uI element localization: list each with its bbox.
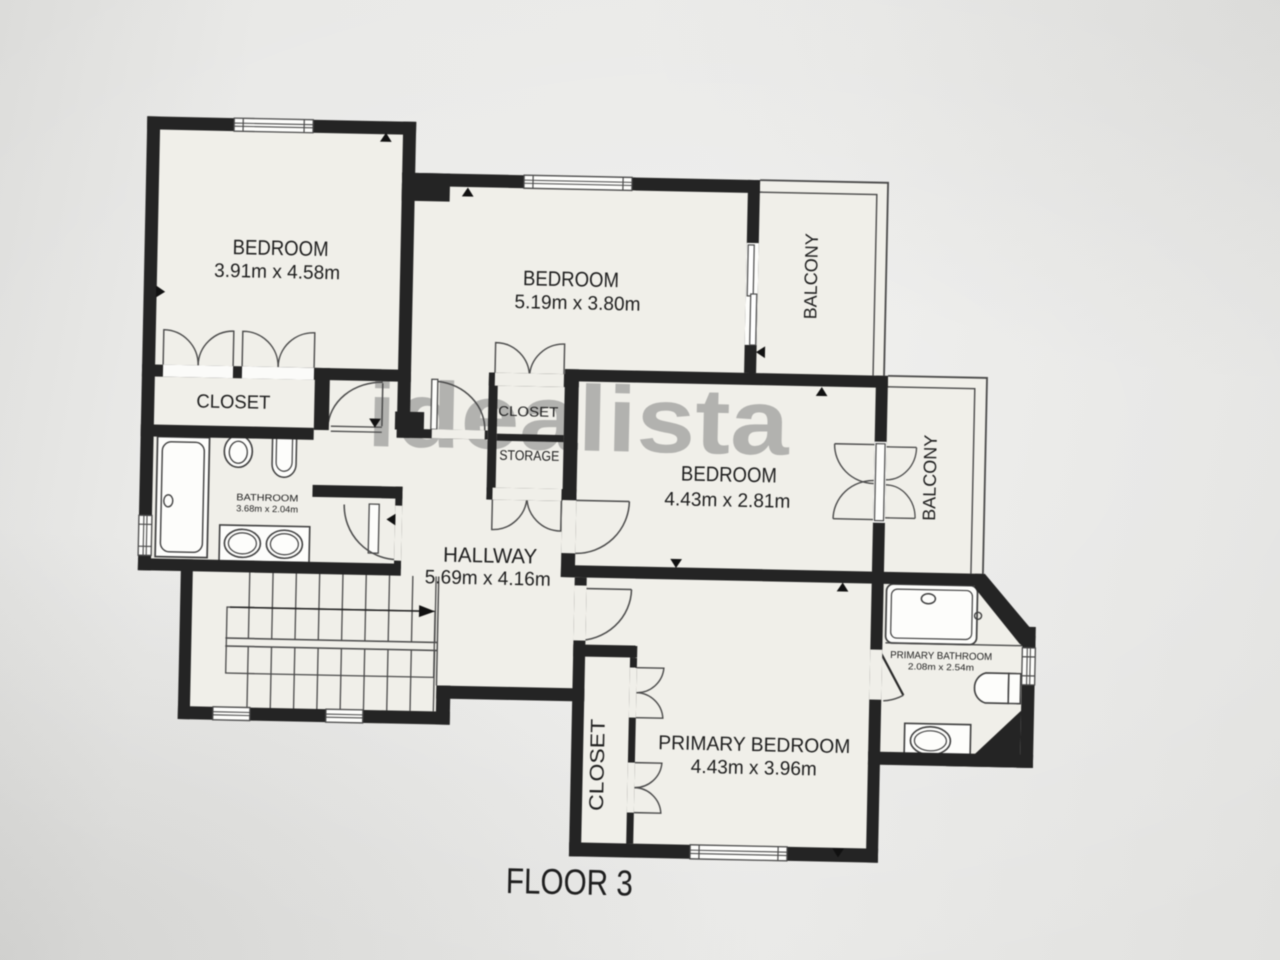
svg-text:BEDROOM: BEDROOM xyxy=(523,267,619,292)
svg-text:4.43m x 3.96m: 4.43m x 3.96m xyxy=(691,756,817,781)
svg-text:CLOSET: CLOSET xyxy=(586,719,610,811)
svg-text:BALCONY: BALCONY xyxy=(800,233,822,319)
svg-text:BEDROOM: BEDROOM xyxy=(681,463,777,488)
svg-text:3.68m x 2.04m: 3.68m x 2.04m xyxy=(236,503,298,514)
svg-text:BALCONY: BALCONY xyxy=(919,435,941,521)
svg-text:STORAGE: STORAGE xyxy=(499,447,559,464)
svg-text:CLOSET: CLOSET xyxy=(498,403,559,420)
svg-text:FLOOR 3: FLOOR 3 xyxy=(505,860,633,904)
svg-text:CLOSET: CLOSET xyxy=(196,391,271,414)
svg-text:5.69m x 4.16m: 5.69m x 4.16m xyxy=(424,566,550,591)
svg-text:3.91m x 4.58m: 3.91m x 4.58m xyxy=(214,260,340,285)
svg-text:PRIMARY BEDROOM: PRIMARY BEDROOM xyxy=(658,732,850,758)
svg-text:2.08m x 2.54m: 2.08m x 2.54m xyxy=(908,661,974,672)
svg-text:HALLWAY: HALLWAY xyxy=(443,544,537,569)
svg-text:4.43m x 2.81m: 4.43m x 2.81m xyxy=(664,488,790,513)
svg-text:BEDROOM: BEDROOM xyxy=(232,236,328,261)
svg-text:5.19m x 3.80m: 5.19m x 3.80m xyxy=(514,291,640,316)
